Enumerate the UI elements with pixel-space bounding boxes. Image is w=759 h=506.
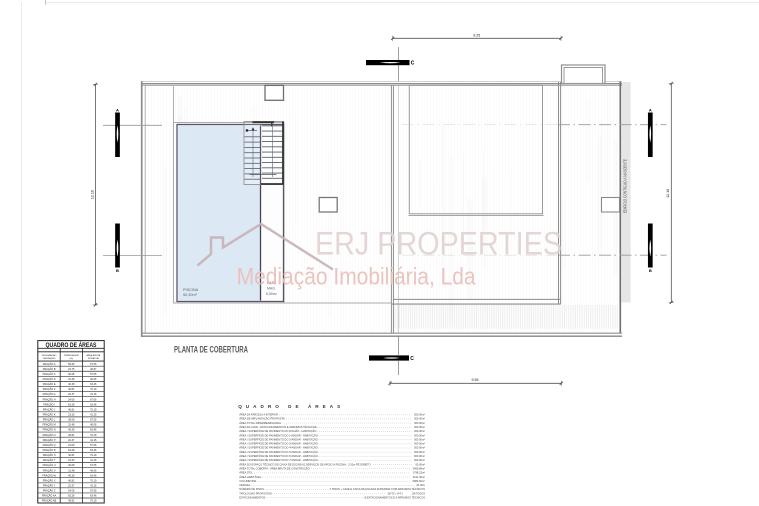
svg-text:C: C	[411, 61, 415, 67]
svg-text:ÁREA HABITÁVEL: ÁREA HABITÁVEL	[239, 475, 261, 479]
svg-text:31.48: 31.48	[68, 469, 75, 472]
svg-text:EDIFÍCIO CONTÍGUO A NASCENTE: EDIFÍCIO CONTÍGUO A NASCENTE	[621, 159, 627, 213]
svg-text:67.06: 67.06	[90, 398, 97, 401]
svg-text:DA FRAÇÃO: DA FRAÇÃO	[43, 357, 56, 360]
svg-text:300.00m²: 300.00m²	[414, 433, 425, 437]
svg-text:FRAÇÃO R: FRAÇÃO R	[43, 449, 56, 452]
svg-text:FRAÇÃO S: FRAÇÃO S	[43, 454, 56, 457]
svg-text:63.28: 63.28	[68, 495, 75, 498]
svg-text:ÁREA TOTAL IMPERMEABILIZADA: ÁREA TOTAL IMPERMEABILIZADA	[239, 421, 281, 425]
svg-text:63.46: 63.46	[90, 474, 97, 477]
svg-text:B: B	[649, 268, 652, 273]
svg-text:70.19: 70.19	[90, 454, 97, 457]
svg-text:40.81: 40.81	[68, 408, 75, 411]
svg-text:1241.36m²: 1241.36m²	[413, 475, 426, 479]
svg-text:67.06: 67.06	[90, 444, 97, 447]
svg-text:40.81: 40.81	[68, 479, 75, 482]
svg-text:FRAÇÃO Q: FRAÇÃO Q	[43, 444, 56, 447]
svg-text:23.75: 23.75	[68, 368, 75, 371]
svg-text:FRAÇÃO N: FRAÇÃO N	[43, 429, 56, 432]
svg-text:40.06: 40.06	[90, 469, 97, 472]
svg-text:63.46: 63.46	[90, 383, 97, 386]
svg-text:9.25: 9.25	[473, 34, 480, 38]
svg-text:VOLUMETRIA: VOLUMETRIA	[239, 479, 256, 483]
svg-text:60.00m²: 60.00m²	[415, 462, 425, 466]
svg-text:63.46: 63.46	[90, 449, 97, 452]
svg-text:FRAÇÃO A: FRAÇÃO A	[43, 363, 56, 366]
svg-text:FRAÇÃO Y: FRAÇÃO Y	[43, 484, 56, 487]
svg-text:41.15: 41.15	[90, 439, 97, 442]
svg-text:40.81: 40.81	[68, 434, 75, 437]
svg-text:FRAÇÃO I: FRAÇÃO I	[43, 403, 55, 406]
svg-text:ÁREA BRUTA: ÁREA BRUTA	[86, 354, 100, 357]
svg-text:67.05: 67.05	[90, 464, 97, 467]
svg-text:9.55: 9.55	[472, 378, 479, 382]
svg-text:41.15: 41.15	[90, 459, 97, 462]
svg-text:FRAÇÃO L: FRAÇÃO L	[43, 419, 56, 422]
svg-text:FRAÇÃO H: FRAÇÃO H	[43, 398, 56, 401]
svg-text:24.06: 24.06	[68, 398, 75, 401]
svg-text:63.46: 63.46	[90, 429, 97, 432]
svg-text:QUADRO DE ÁREAS: QUADRO DE ÁREAS	[238, 403, 342, 409]
svg-text:FRAÇÃO AB: FRAÇÃO AB	[42, 500, 57, 503]
svg-text:300.00m²: 300.00m²	[414, 442, 425, 446]
svg-text:30.08: 30.08	[68, 464, 75, 467]
svg-text:67.05: 67.05	[90, 363, 97, 366]
svg-text:40.39: 40.39	[68, 429, 75, 432]
svg-text:40.81: 40.81	[68, 500, 75, 503]
svg-text:FRAÇÃO J: FRAÇÃO J	[43, 408, 56, 411]
svg-text:TIPOLOGIAS PROPOSTAS: TIPOLOGIAS PROPOSTAS	[239, 491, 272, 495]
svg-text:FRAÇÃO W: FRAÇÃO W	[42, 474, 56, 477]
svg-text:300.00m²: 300.00m²	[414, 450, 425, 454]
svg-text:FRAÇÃO X: FRAÇÃO X	[43, 479, 56, 482]
svg-text:FRAÇÃO E: FRAÇÃO E	[43, 383, 56, 386]
svg-text:2460.89m²: 2460.89m²	[413, 466, 426, 470]
svg-text:300.00m²: 300.00m²	[414, 437, 425, 441]
svg-text:FRAÇÃO C: FRAÇÃO C	[43, 373, 56, 376]
svg-text:31.48: 31.48	[68, 424, 75, 427]
svg-text:31.48: 31.48	[68, 378, 75, 381]
svg-text:B: B	[116, 268, 119, 273]
svg-text:28ºT2 + 8ºT1 28 FOGOS: 28ºT2 + 8ºT1 28 FOGOS	[388, 491, 426, 495]
svg-text:67.05: 67.05	[90, 419, 97, 422]
svg-text:FRAÇÃO B: FRAÇÃO B	[43, 368, 56, 371]
svg-text:300.00m²: 300.00m²	[414, 454, 425, 458]
svg-text:63.46: 63.46	[90, 403, 97, 406]
svg-text:300.00m²: 300.00m²	[414, 417, 425, 421]
svg-text:70.19: 70.19	[90, 408, 97, 411]
svg-text:PRIVATIVA: PRIVATIVA	[88, 357, 99, 360]
svg-text:ESTACIONAMENTOS: ESTACIONAMENTOS	[239, 496, 265, 500]
svg-text:22.37: 22.37	[68, 393, 75, 396]
svg-text:40.81: 40.81	[68, 388, 75, 391]
svg-text:6982.60m³: 6982.60m³	[413, 479, 426, 483]
svg-text:300.00m²: 300.00m²	[414, 446, 425, 450]
svg-text:FRAÇÃO Z: FRAÇÃO Z	[43, 490, 56, 493]
svg-text:70.19: 70.19	[90, 500, 97, 503]
svg-text:63.28: 63.28	[68, 403, 75, 406]
svg-text:FRAÇÃO AA: FRAÇÃO AA	[42, 495, 57, 498]
svg-text:22.00m: 22.00m	[416, 483, 425, 487]
svg-text:PISCINA: PISCINA	[183, 288, 199, 292]
svg-text:41.15: 41.15	[90, 393, 97, 396]
svg-text:ERJ PROPERTIES: ERJ PROPERTIES	[315, 226, 562, 262]
svg-text:C: C	[410, 356, 414, 362]
svg-text:41.15: 41.15	[90, 414, 97, 417]
svg-text:40.06: 40.06	[90, 378, 97, 381]
svg-text:59.45: 59.45	[68, 363, 75, 366]
svg-text:40.39: 40.39	[68, 383, 75, 386]
svg-text:12.16: 12.16	[666, 189, 670, 198]
svg-text:12.16: 12.16	[90, 190, 94, 199]
svg-text:70.19: 70.19	[90, 479, 97, 482]
svg-text:FRAÇÃO D: FRAÇÃO D	[43, 378, 56, 381]
svg-text:ÁREA DA PARCELA A INTERVIR: ÁREA DA PARCELA A INTERVIR	[239, 413, 278, 417]
svg-text:40.06: 40.06	[90, 424, 97, 427]
svg-text:30.08: 30.08	[68, 419, 75, 422]
svg-text:FRAÇÃO K: FRAÇÃO K	[43, 414, 56, 417]
svg-text:63.28: 63.28	[68, 449, 75, 452]
svg-text:A: A	[116, 108, 119, 113]
svg-text:300.00m²: 300.00m²	[414, 413, 425, 417]
svg-text:70.19: 70.19	[90, 388, 97, 391]
svg-text:FRAÇÃO F: FRAÇÃO F	[43, 388, 56, 391]
svg-text:67.05: 67.05	[90, 373, 97, 376]
svg-text:30.08: 30.08	[68, 373, 75, 376]
svg-text:300.00m²: 300.00m²	[414, 421, 425, 425]
svg-text:FRAÇÃO G: FRAÇÃO G	[43, 393, 56, 396]
svg-text:40.81: 40.81	[68, 454, 75, 457]
svg-text:63.46: 63.46	[90, 495, 97, 498]
svg-text:PERMILAGEM: PERMILAGEM	[64, 354, 79, 357]
svg-text:50,30m²: 50,30m²	[183, 293, 198, 297]
svg-text:24.06: 24.06	[68, 490, 75, 493]
svg-text:300.00m²: 300.00m²	[414, 429, 425, 433]
svg-text:DESIGNAÇÃO: DESIGNAÇÃO	[42, 354, 57, 357]
svg-text:FRAÇÃO U: FRAÇÃO U	[43, 464, 56, 467]
svg-text:FRAÇÃO T: FRAÇÃO T	[43, 459, 56, 462]
svg-text:FRAÇÃO V: FRAÇÃO V	[43, 469, 56, 472]
svg-text:300.00m²: 300.00m²	[414, 458, 425, 462]
svg-text:23.33: 23.33	[68, 414, 75, 417]
svg-text:FRAÇÃO O: FRAÇÃO O	[43, 434, 56, 437]
svg-text:70.19: 70.19	[90, 434, 97, 437]
svg-text:22.37: 22.37	[68, 439, 75, 442]
svg-text:(‰): (‰)	[69, 358, 73, 360]
svg-text:67.06: 67.06	[90, 490, 97, 493]
svg-text:FRAÇÃO M: FRAÇÃO M	[42, 424, 55, 427]
svg-text:FRAÇÃO P: FRAÇÃO P	[43, 439, 56, 442]
svg-text:PLANTA DE COBERTURA: PLANTA DE COBERTURA	[174, 345, 248, 355]
svg-text:1798.23m²: 1798.23m²	[413, 471, 426, 475]
svg-text:22.37: 22.37	[68, 484, 75, 487]
svg-text:6,50m²: 6,50m²	[266, 292, 278, 296]
svg-text:40.39: 40.39	[68, 474, 75, 477]
svg-text:23.33: 23.33	[68, 459, 75, 462]
svg-text:41.15: 41.15	[90, 484, 97, 487]
svg-text:Mediação Imobiliária, Lda: Mediação Imobiliária, Lda	[237, 263, 477, 290]
svg-text:300.00m²: 300.00m²	[414, 425, 425, 429]
svg-text:A: A	[649, 108, 652, 113]
svg-text:24.06: 24.06	[68, 444, 75, 447]
svg-text:40.87: 40.87	[90, 368, 97, 371]
